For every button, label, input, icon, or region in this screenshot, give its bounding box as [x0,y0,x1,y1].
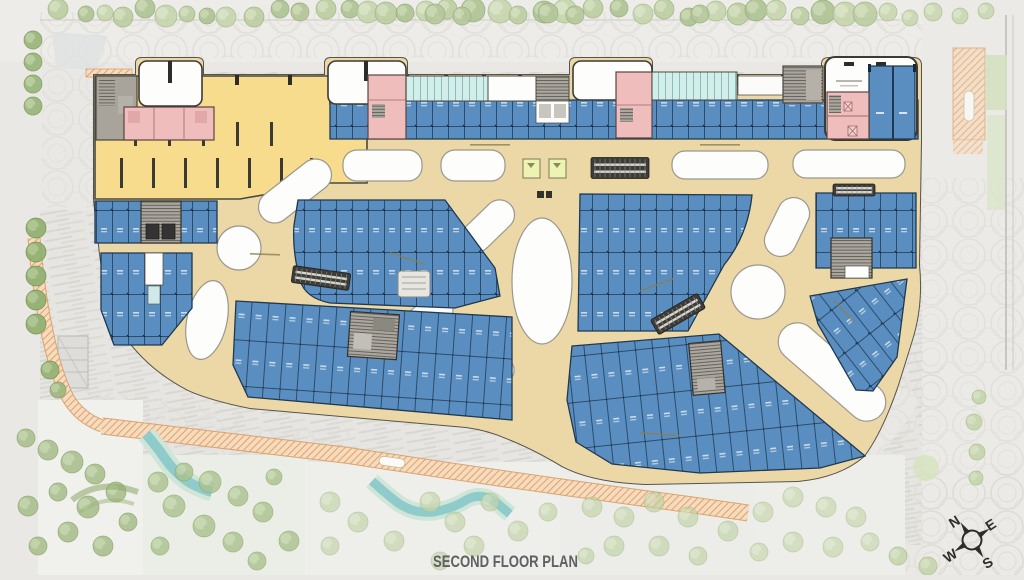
svg-text:SECOND FLOOR PLAN: SECOND FLOOR PLAN [433,553,578,571]
